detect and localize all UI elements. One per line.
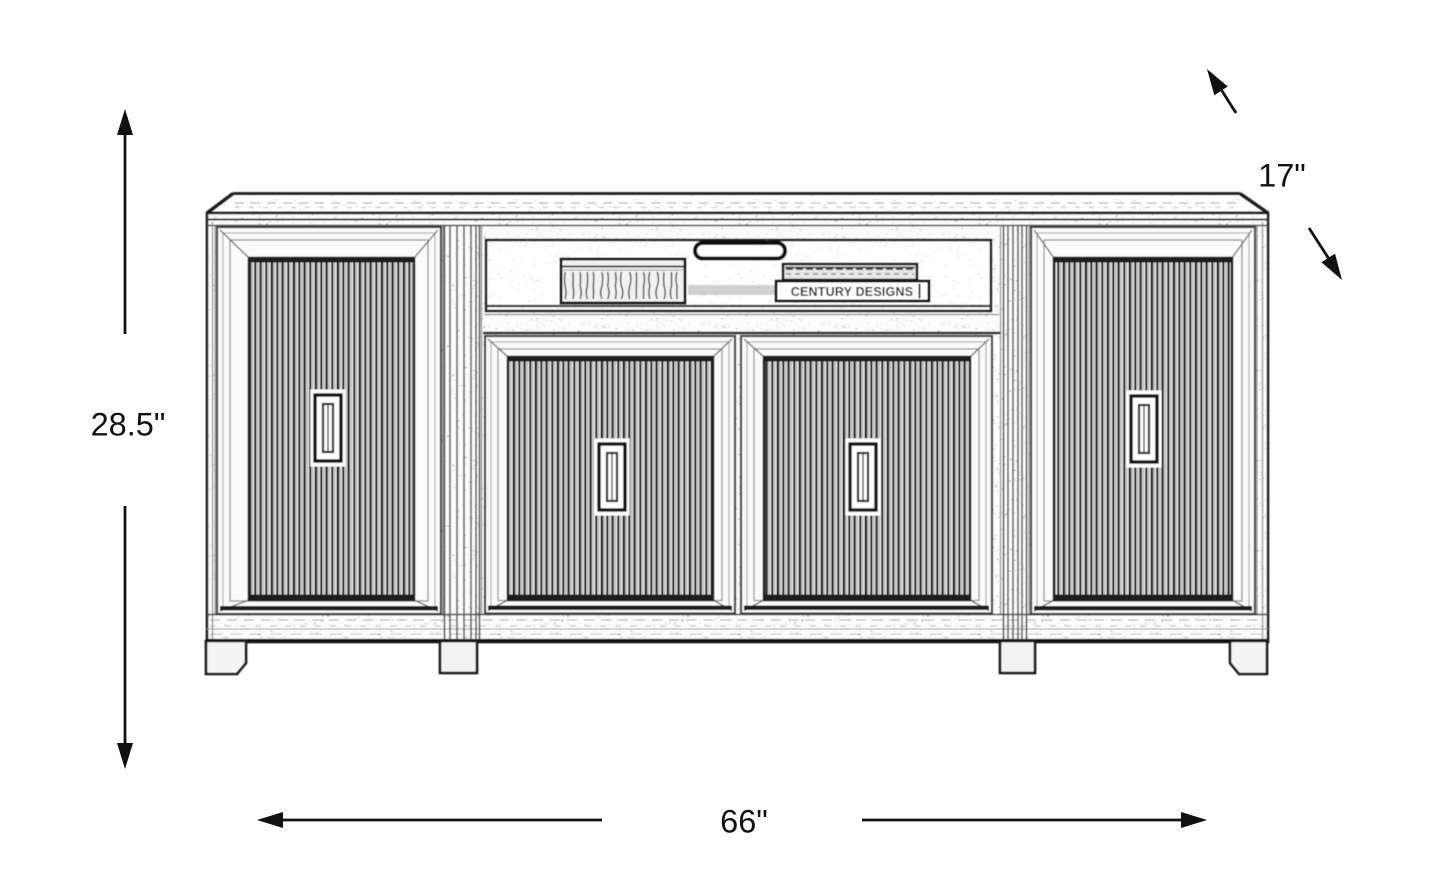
svg-text:CENTURY DESIGNS: CENTURY DESIGNS — [791, 285, 913, 299]
svg-text:28.5": 28.5" — [91, 407, 166, 443]
svg-text:66": 66" — [720, 804, 768, 840]
svg-text:17": 17" — [1258, 158, 1306, 194]
